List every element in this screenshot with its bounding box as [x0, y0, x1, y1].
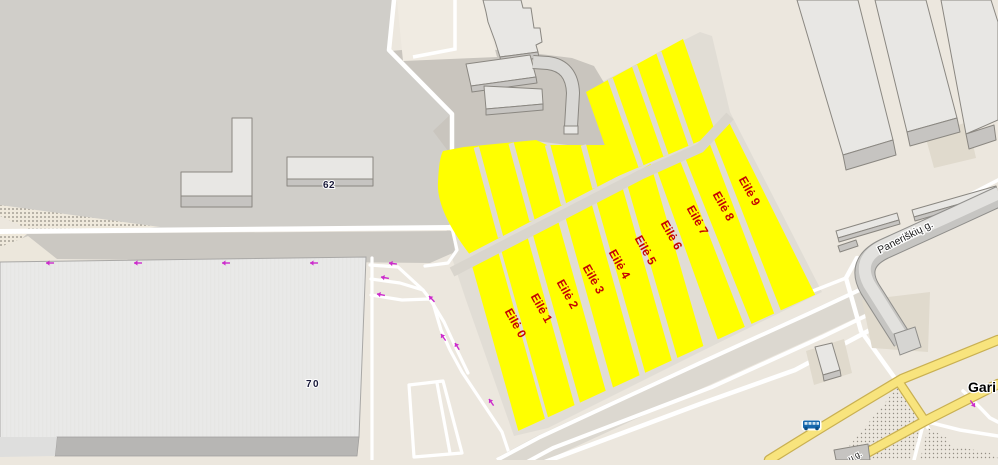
- svg-text:62: 62: [323, 180, 335, 191]
- svg-text:Gari: Gari: [968, 379, 996, 395]
- svg-text:70: 70: [306, 379, 320, 390]
